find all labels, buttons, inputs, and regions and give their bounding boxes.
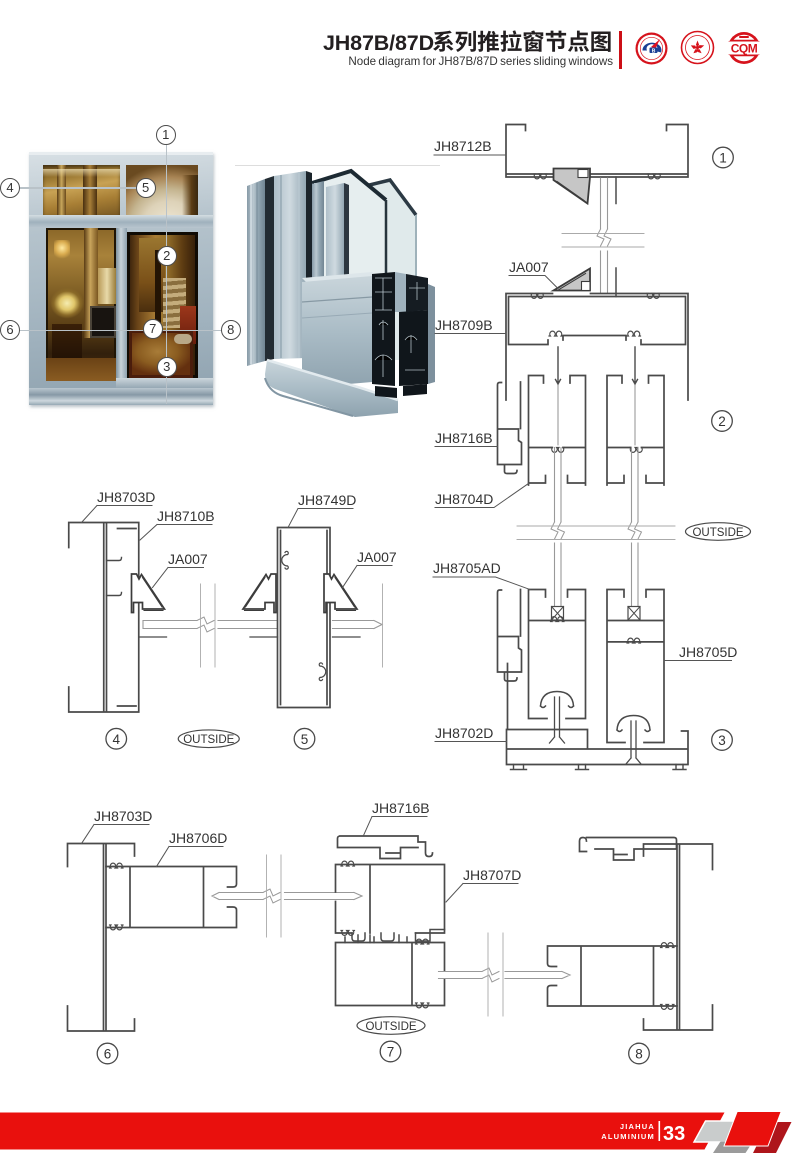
svg-text:JH8710B: JH8710B — [157, 508, 215, 524]
svg-text:JH8705AD: JH8705AD — [433, 560, 501, 576]
svg-text:33: 33 — [663, 1123, 685, 1145]
svg-text:1: 1 — [719, 151, 727, 166]
svg-text:ALUMINIUM: ALUMINIUM — [601, 1132, 655, 1141]
svg-text:5: 5 — [301, 732, 309, 747]
svg-text:JH8716B: JH8716B — [372, 800, 430, 816]
svg-text:JH8749D: JH8749D — [298, 492, 356, 508]
svg-text:4: 4 — [112, 732, 120, 747]
svg-text:JH8716B: JH8716B — [435, 430, 493, 446]
svg-text:6: 6 — [104, 1047, 112, 1062]
svg-text:JA007: JA007 — [509, 259, 549, 275]
svg-text:2: 2 — [718, 414, 726, 429]
svg-text:JA007: JA007 — [168, 551, 208, 567]
svg-text:JH8712B: JH8712B — [434, 138, 492, 154]
svg-text:JA007: JA007 — [357, 549, 397, 565]
svg-text:JH8703D: JH8703D — [94, 808, 152, 824]
svg-text:OUTSIDE: OUTSIDE — [183, 734, 234, 746]
svg-text:JH8709B: JH8709B — [435, 317, 493, 333]
svg-text:JH8704D: JH8704D — [435, 491, 493, 507]
svg-text:7: 7 — [387, 1045, 395, 1060]
svg-text:JH8702D: JH8702D — [435, 725, 493, 741]
svg-text:JH8706D: JH8706D — [169, 830, 227, 846]
svg-text:JIAHUA: JIAHUA — [620, 1122, 655, 1131]
svg-text:JH8707D: JH8707D — [463, 867, 521, 883]
svg-text:OUTSIDE: OUTSIDE — [692, 527, 743, 539]
svg-text:8: 8 — [635, 1047, 643, 1062]
svg-text:OUTSIDE: OUTSIDE — [365, 1021, 416, 1033]
svg-text:3: 3 — [718, 733, 726, 748]
svg-text:JH8705D: JH8705D — [679, 644, 737, 660]
svg-text:JH8703D: JH8703D — [97, 489, 155, 505]
